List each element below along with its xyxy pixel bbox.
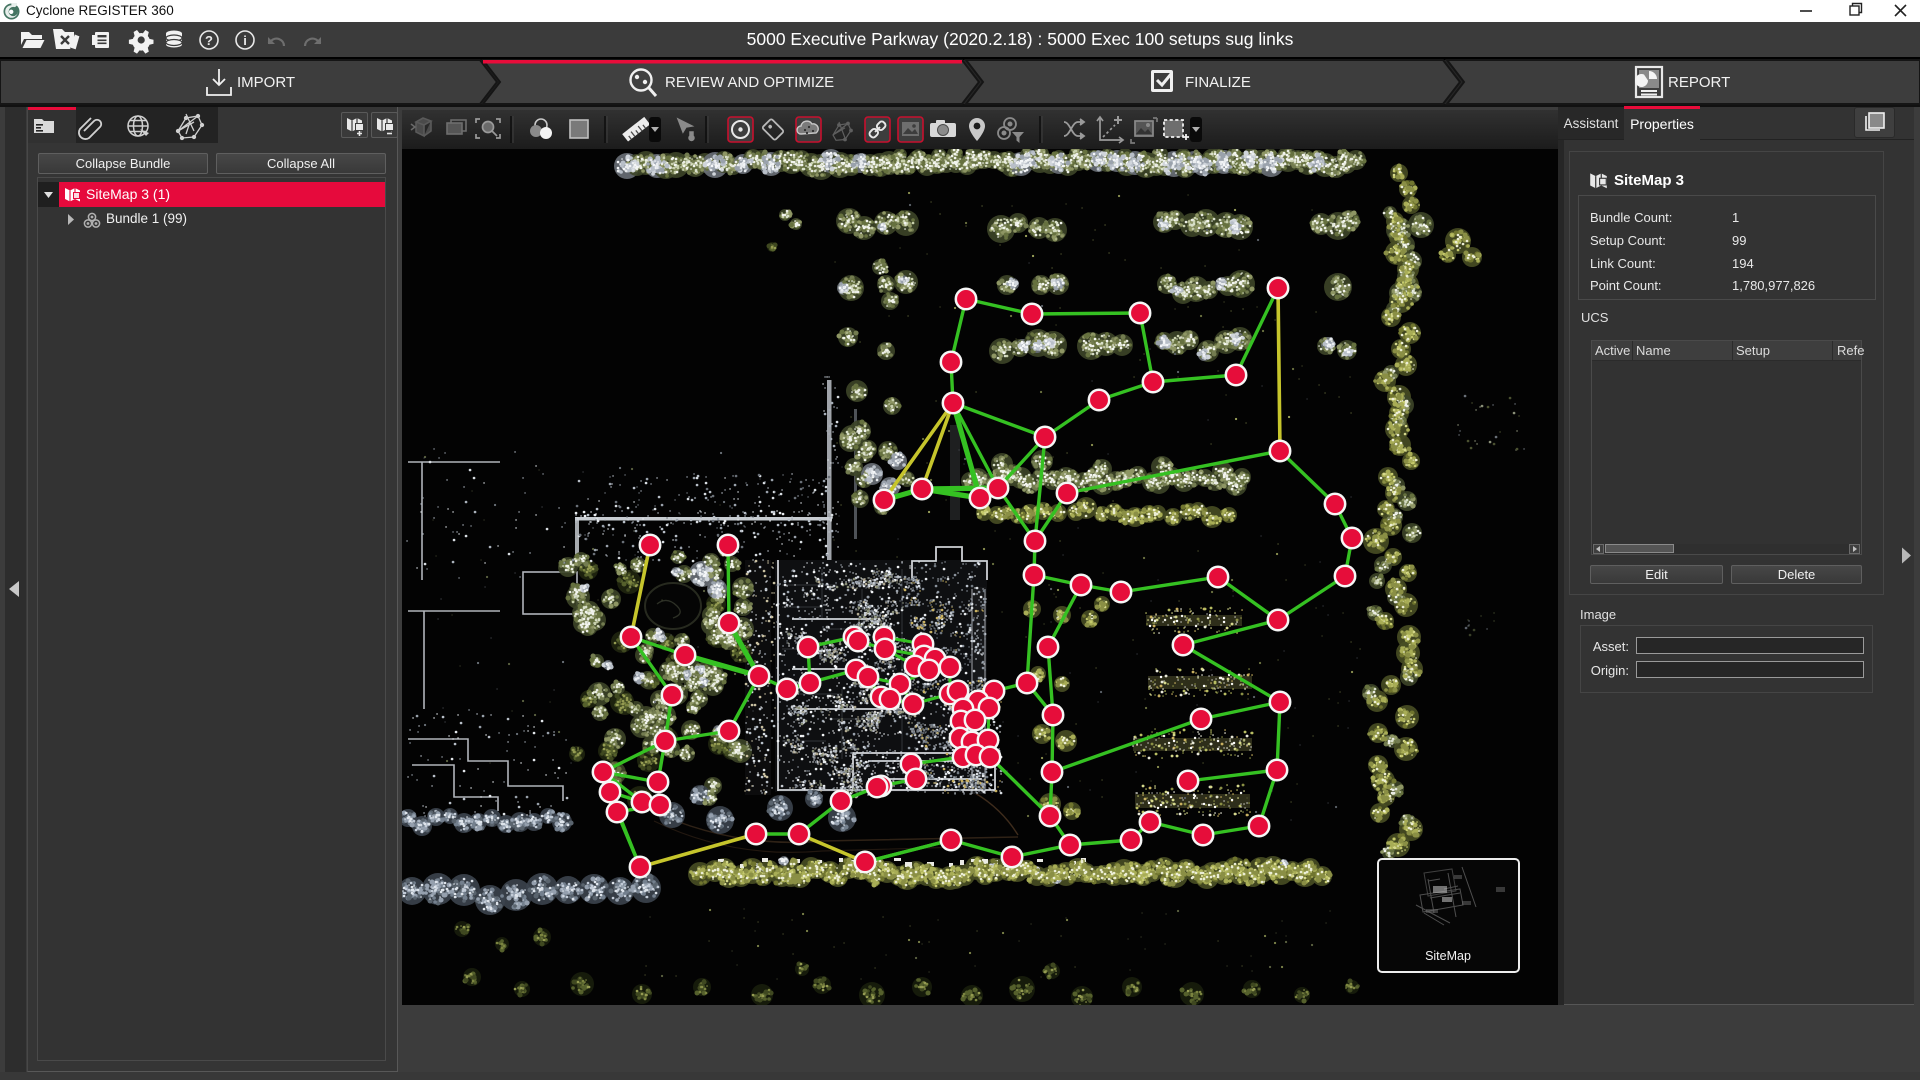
svg-text:SiteMap: SiteMap xyxy=(1425,949,1471,963)
svg-text:i: i xyxy=(243,33,247,48)
svg-text:FINALIZE: FINALIZE xyxy=(1185,74,1251,91)
svg-text:?: ? xyxy=(205,33,213,48)
svg-text:REVIEW AND OPTIMIZE: REVIEW AND OPTIMIZE xyxy=(665,74,834,91)
svg-text:IMPORT: IMPORT xyxy=(237,74,295,91)
svg-text:REPORT: REPORT xyxy=(1668,74,1730,91)
